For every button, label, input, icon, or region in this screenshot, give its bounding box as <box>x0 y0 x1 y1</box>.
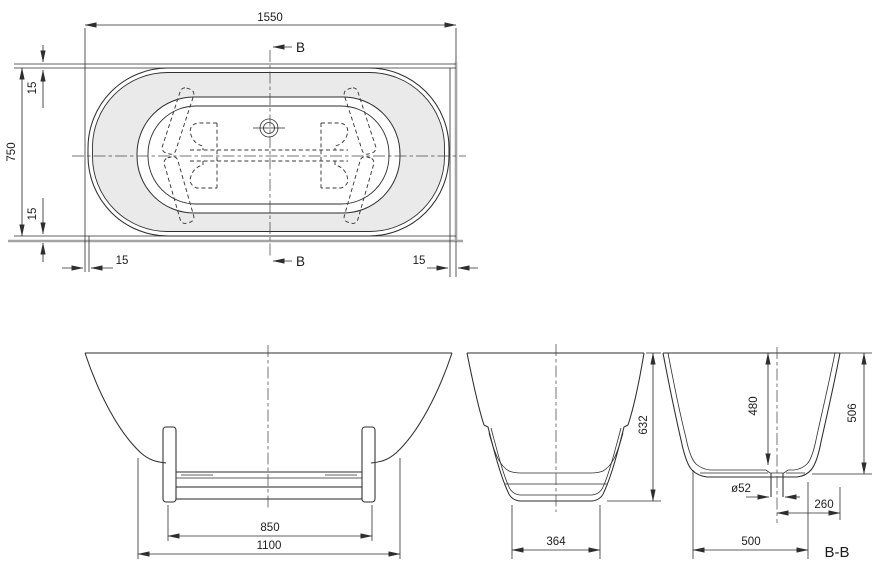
drawing-canvas: B B 1550 750 15 15 15 15 <box>0 0 880 571</box>
dim-text-364: 364 <box>546 536 566 548</box>
front-silhouette-right <box>371 353 452 463</box>
side-silhouette <box>467 353 644 501</box>
dim-text-1100: 1100 <box>257 540 282 552</box>
plan-view: B B 1550 750 15 15 15 15 <box>6 12 478 277</box>
dim-text-1550: 1550 <box>257 12 283 24</box>
dim-text-260: 260 <box>814 499 833 511</box>
bathtub-dimension-drawing: B B 1550 750 15 15 15 15 <box>0 0 880 571</box>
plinth-base-slab <box>176 487 362 499</box>
basin-top-edge <box>137 97 400 213</box>
dim-text-500: 500 <box>741 536 760 548</box>
section-b-b: 480 506 ø52 260 500 B-B <box>663 347 872 561</box>
plinth-foot-right <box>362 427 375 502</box>
section-label-top: B <box>296 40 305 55</box>
dim-text-850: 850 <box>260 522 279 534</box>
plinth-foot-left <box>163 427 176 502</box>
dim-text-480: 480 <box>748 396 760 415</box>
dim-text-15-top: 15 <box>27 82 39 95</box>
dim-text-506: 506 <box>847 403 859 422</box>
section-label-bottom: B <box>296 254 305 269</box>
dim-text-15-bottom: 15 <box>27 208 39 221</box>
front-silhouette-left <box>85 353 166 463</box>
dim-text-750: 750 <box>6 142 18 161</box>
front-elevation: 850 1100 <box>85 345 452 559</box>
dim-text-15-right: 15 <box>413 255 426 267</box>
dim-text-15-left: 15 <box>116 255 129 267</box>
dim-text-52: ø52 <box>731 483 751 495</box>
section-title: B-B <box>824 544 849 561</box>
end-elevation: 632 364 <box>467 344 661 559</box>
dim-text-632: 632 <box>638 415 650 434</box>
